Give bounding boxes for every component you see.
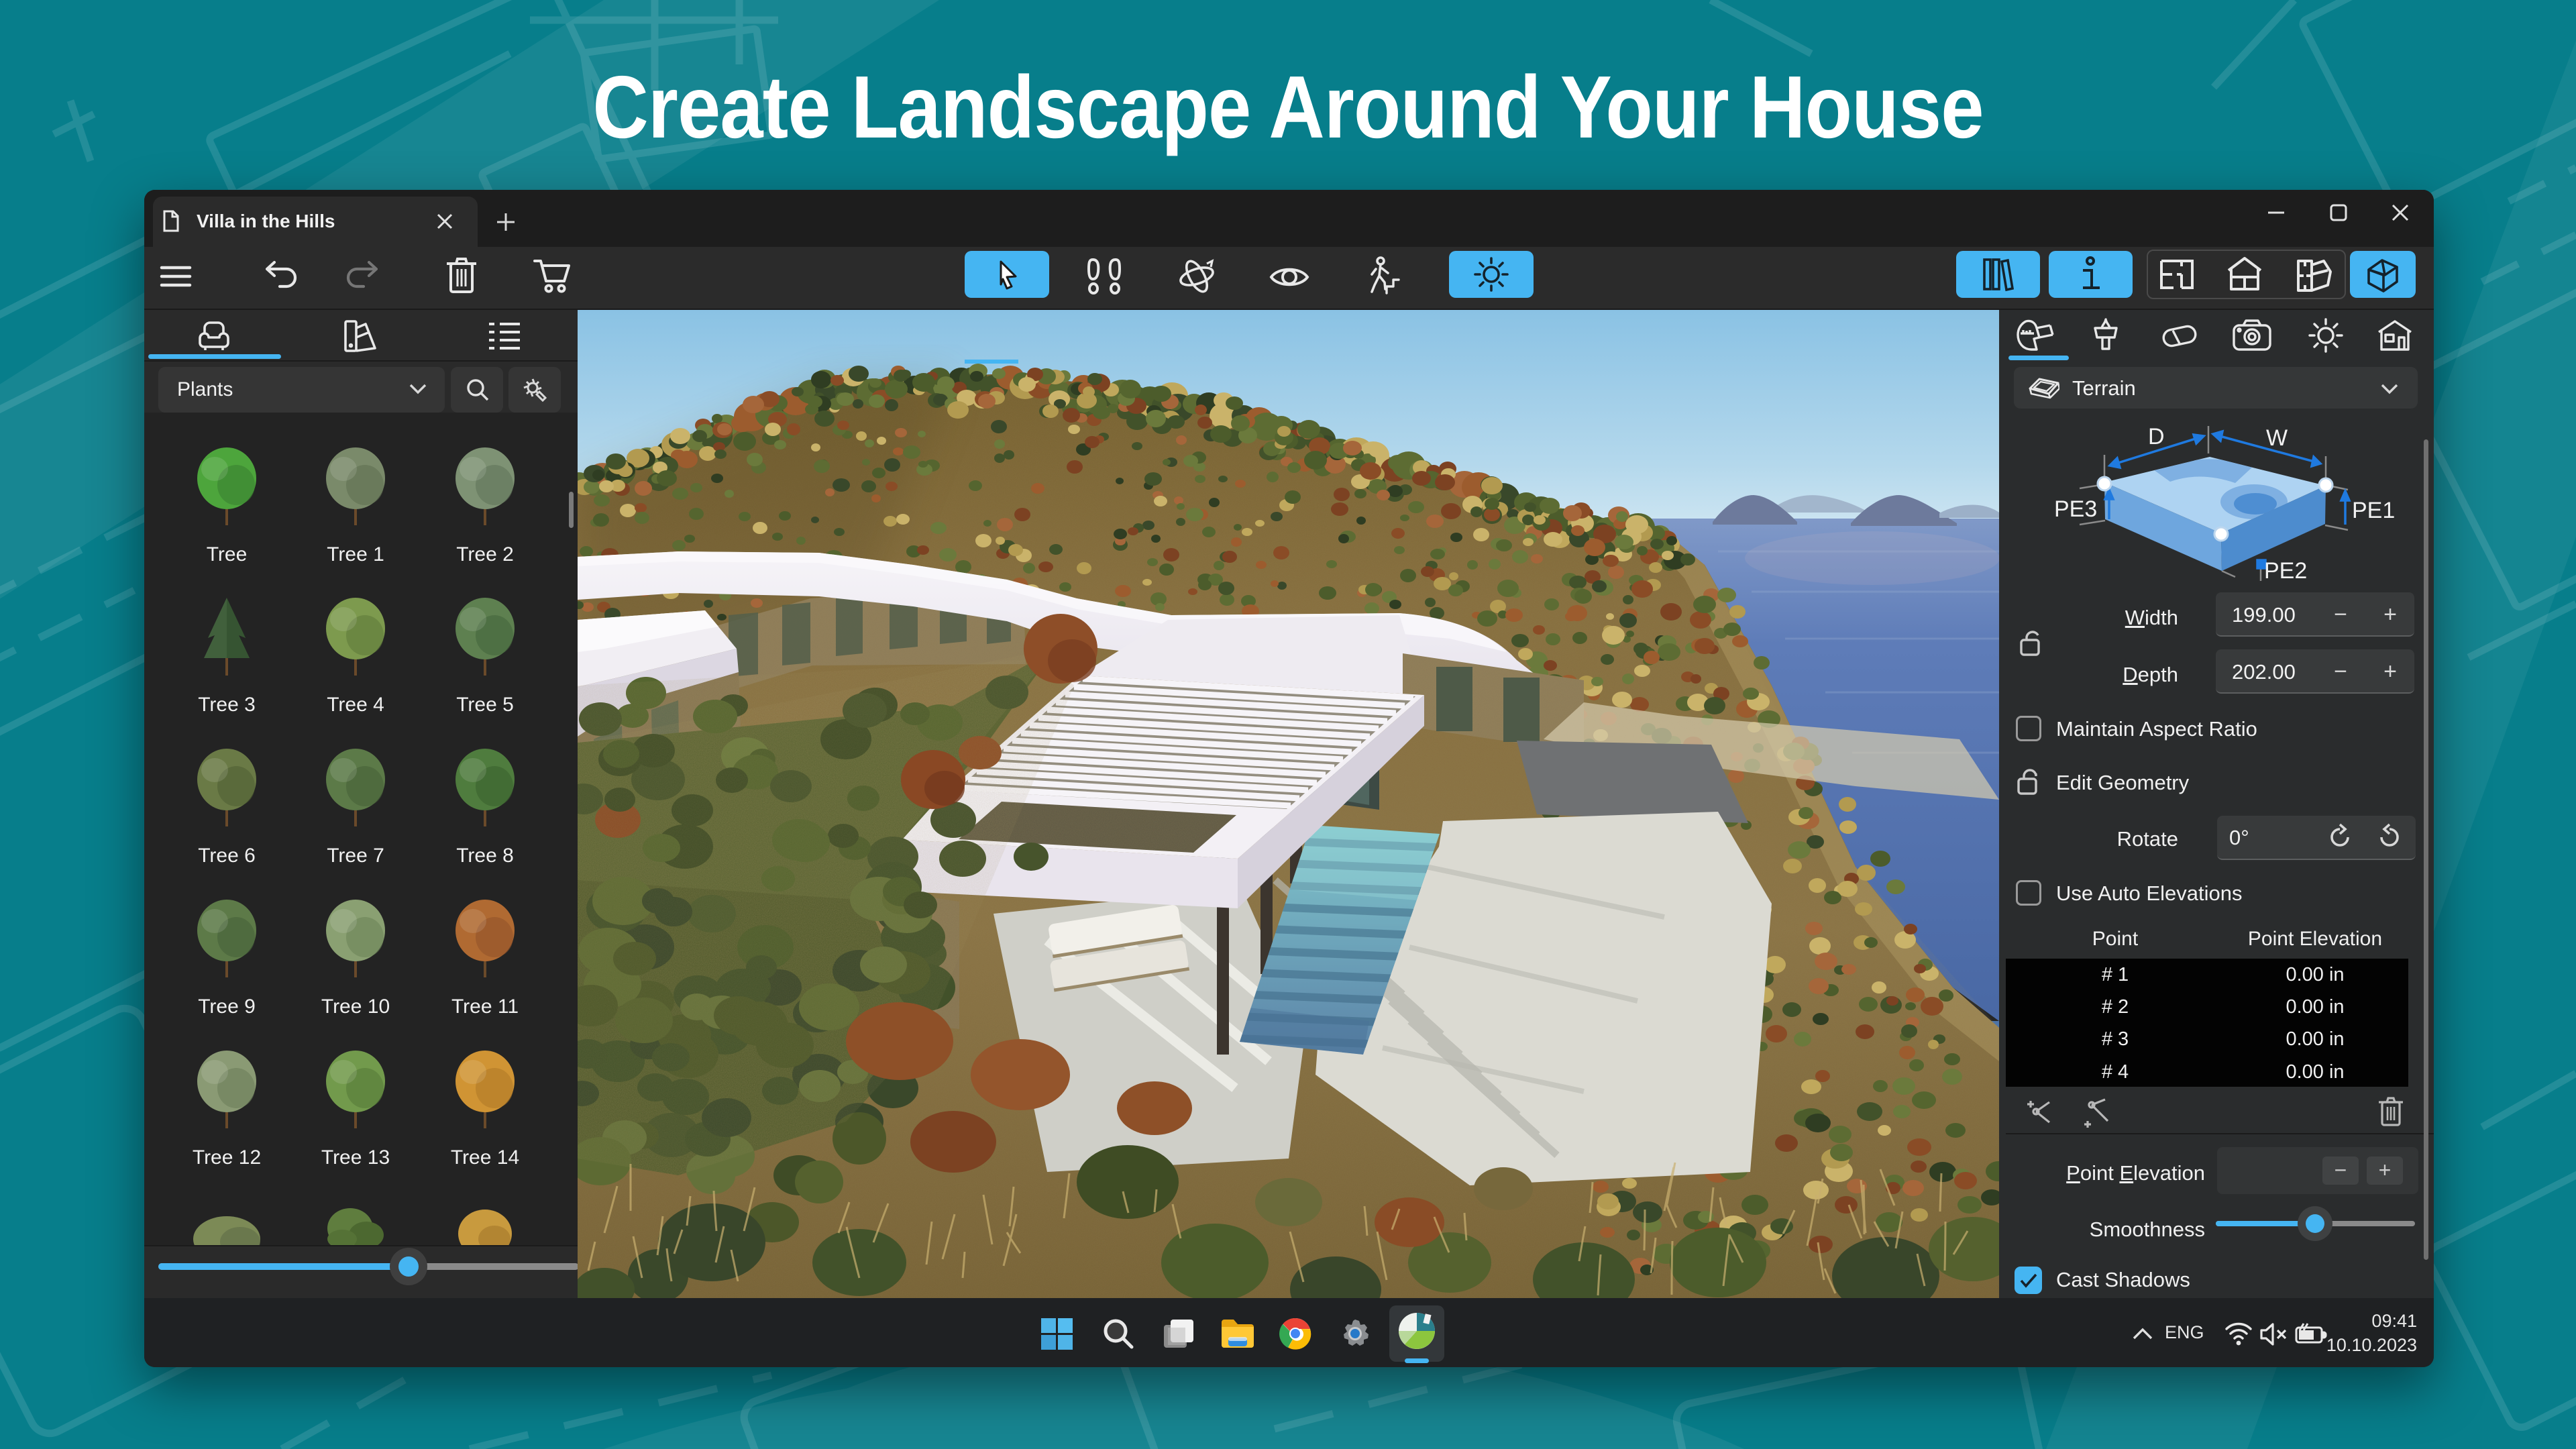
svg-text:PE2: PE2 (2264, 558, 2307, 584)
svg-text:PE1: PE1 (2352, 498, 2395, 523)
svg-text:W: W (2266, 425, 2288, 451)
svg-text:D: D (2148, 424, 2165, 449)
svg-text:PE3: PE3 (2054, 496, 2097, 522)
